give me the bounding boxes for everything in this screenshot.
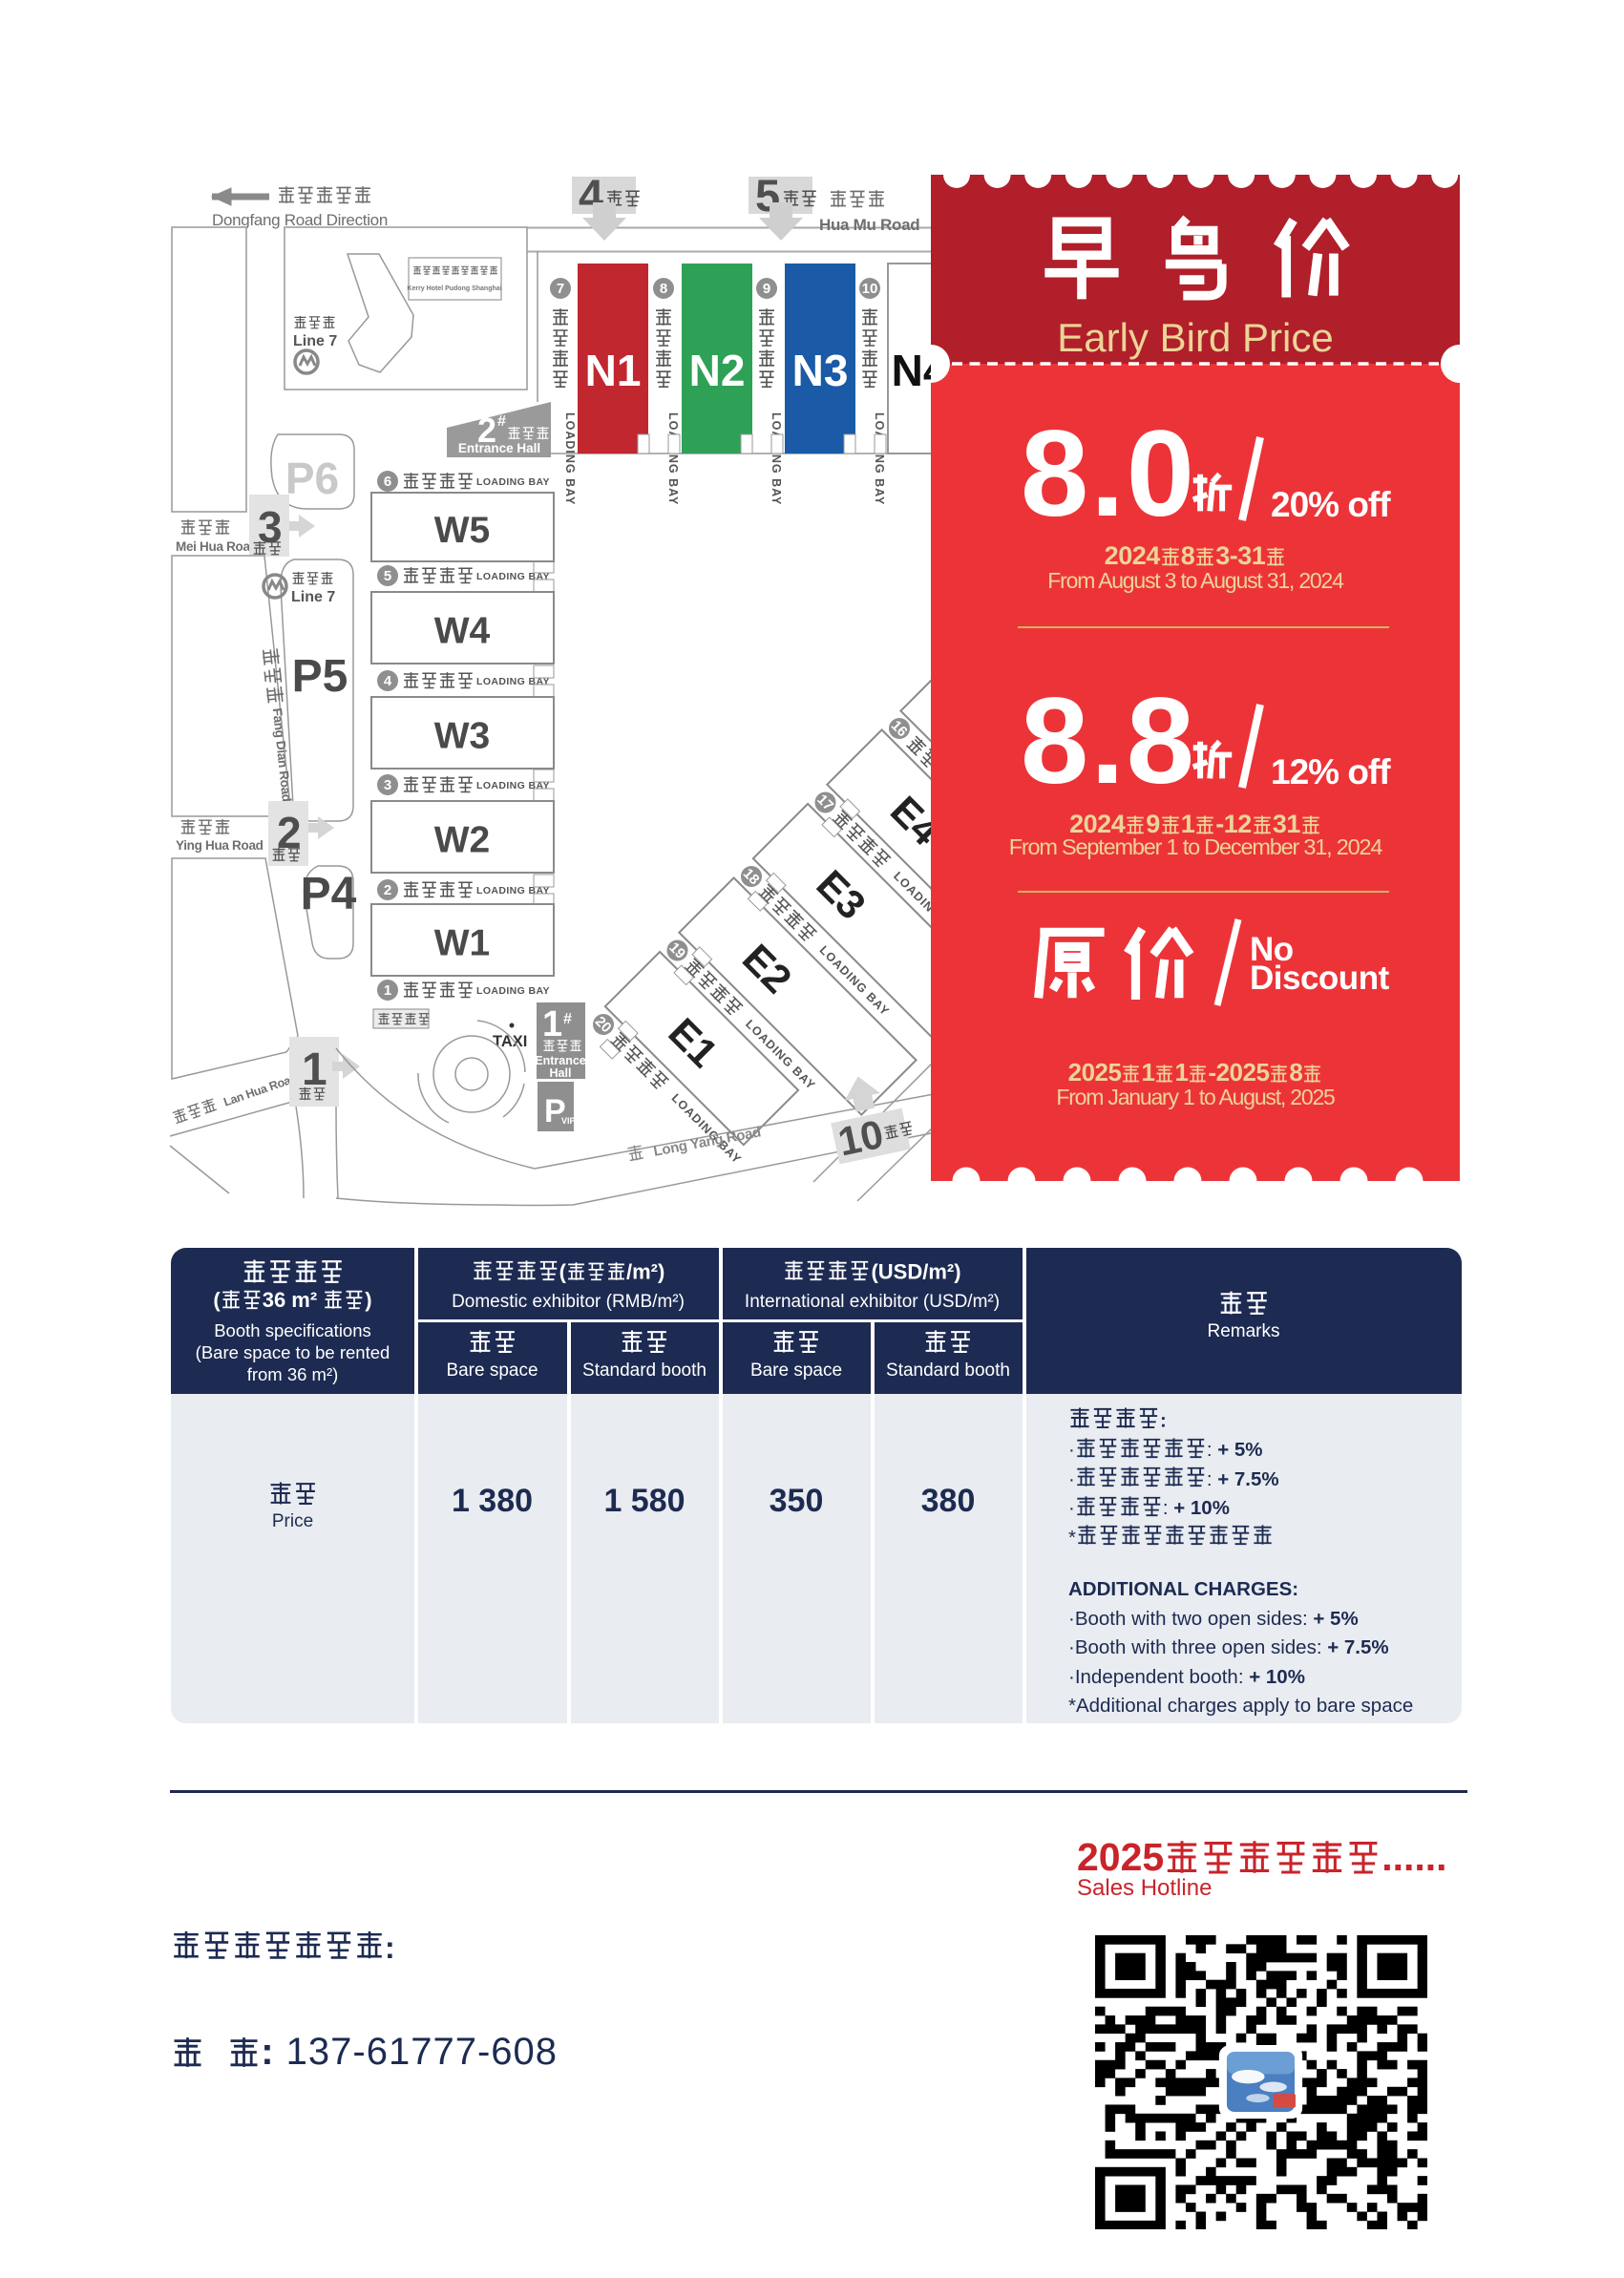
svg-text:7: 7 xyxy=(557,281,564,297)
svg-text:18: 18 xyxy=(740,865,763,888)
svg-text:P4: P4 xyxy=(301,869,357,919)
svg-text:LOADING BAY: LOADING BAY xyxy=(563,412,577,505)
svg-text:3: 3 xyxy=(384,777,391,793)
svg-text:P5: P5 xyxy=(292,651,348,702)
svg-text:9: 9 xyxy=(763,281,770,297)
svg-text:Entrance Hall: Entrance Hall xyxy=(458,441,540,455)
svg-text:W5: W5 xyxy=(434,510,491,551)
svg-text:6: 6 xyxy=(384,474,391,490)
svg-text:N2: N2 xyxy=(689,346,746,395)
svg-text:1: 1 xyxy=(542,1004,562,1044)
svg-text:LOADING BAY: LOADING BAY xyxy=(666,412,680,505)
svg-text:Line 7: Line 7 xyxy=(291,589,335,605)
svg-text:19: 19 xyxy=(665,939,688,962)
svg-text:#: # xyxy=(563,1011,572,1027)
svg-text:Ying Hua Road: Ying Hua Road xyxy=(176,838,264,853)
svg-text:10: 10 xyxy=(834,1111,887,1165)
svg-text:P6: P6 xyxy=(285,453,339,503)
svg-text:Dongfang Road Direction: Dongfang Road Direction xyxy=(212,211,388,229)
svg-text:N3: N3 xyxy=(792,346,849,395)
svg-text:#: # xyxy=(497,413,506,430)
svg-text:Line 7: Line 7 xyxy=(293,333,337,349)
svg-text:W1: W1 xyxy=(434,923,491,964)
svg-text:20: 20 xyxy=(592,1013,615,1036)
svg-text:5: 5 xyxy=(384,568,391,584)
svg-text:LOADING BAY: LOADING BAY xyxy=(476,985,550,997)
svg-text:Hua Mu Road: Hua Mu Road xyxy=(819,216,919,234)
svg-text:16: 16 xyxy=(888,717,911,740)
svg-text:VIP: VIP xyxy=(561,1116,576,1126)
svg-text:LOADING BAY: LOADING BAY xyxy=(873,412,886,505)
svg-text:1: 1 xyxy=(384,982,391,999)
svg-text:17: 17 xyxy=(813,791,836,814)
svg-text:LOADING BAY: LOADING BAY xyxy=(476,476,550,488)
svg-text:Kerry Hotel Pudong Shanghai: Kerry Hotel Pudong Shanghai xyxy=(407,285,501,292)
svg-text:Entrance: Entrance xyxy=(535,1054,586,1067)
svg-text:W3: W3 xyxy=(434,716,491,757)
svg-text:8: 8 xyxy=(660,281,667,297)
svg-text:W4: W4 xyxy=(434,611,491,652)
svg-text:N1: N1 xyxy=(585,346,642,395)
svg-text:4: 4 xyxy=(384,673,392,689)
svg-text:Hall: Hall xyxy=(550,1066,572,1080)
svg-text:Mei Hua Road: Mei Hua Road xyxy=(176,539,258,554)
svg-text:2: 2 xyxy=(384,882,391,898)
svg-text:LOADING BAY: LOADING BAY xyxy=(770,412,783,505)
svg-text:W2: W2 xyxy=(434,820,491,861)
svg-text:10: 10 xyxy=(862,281,878,297)
